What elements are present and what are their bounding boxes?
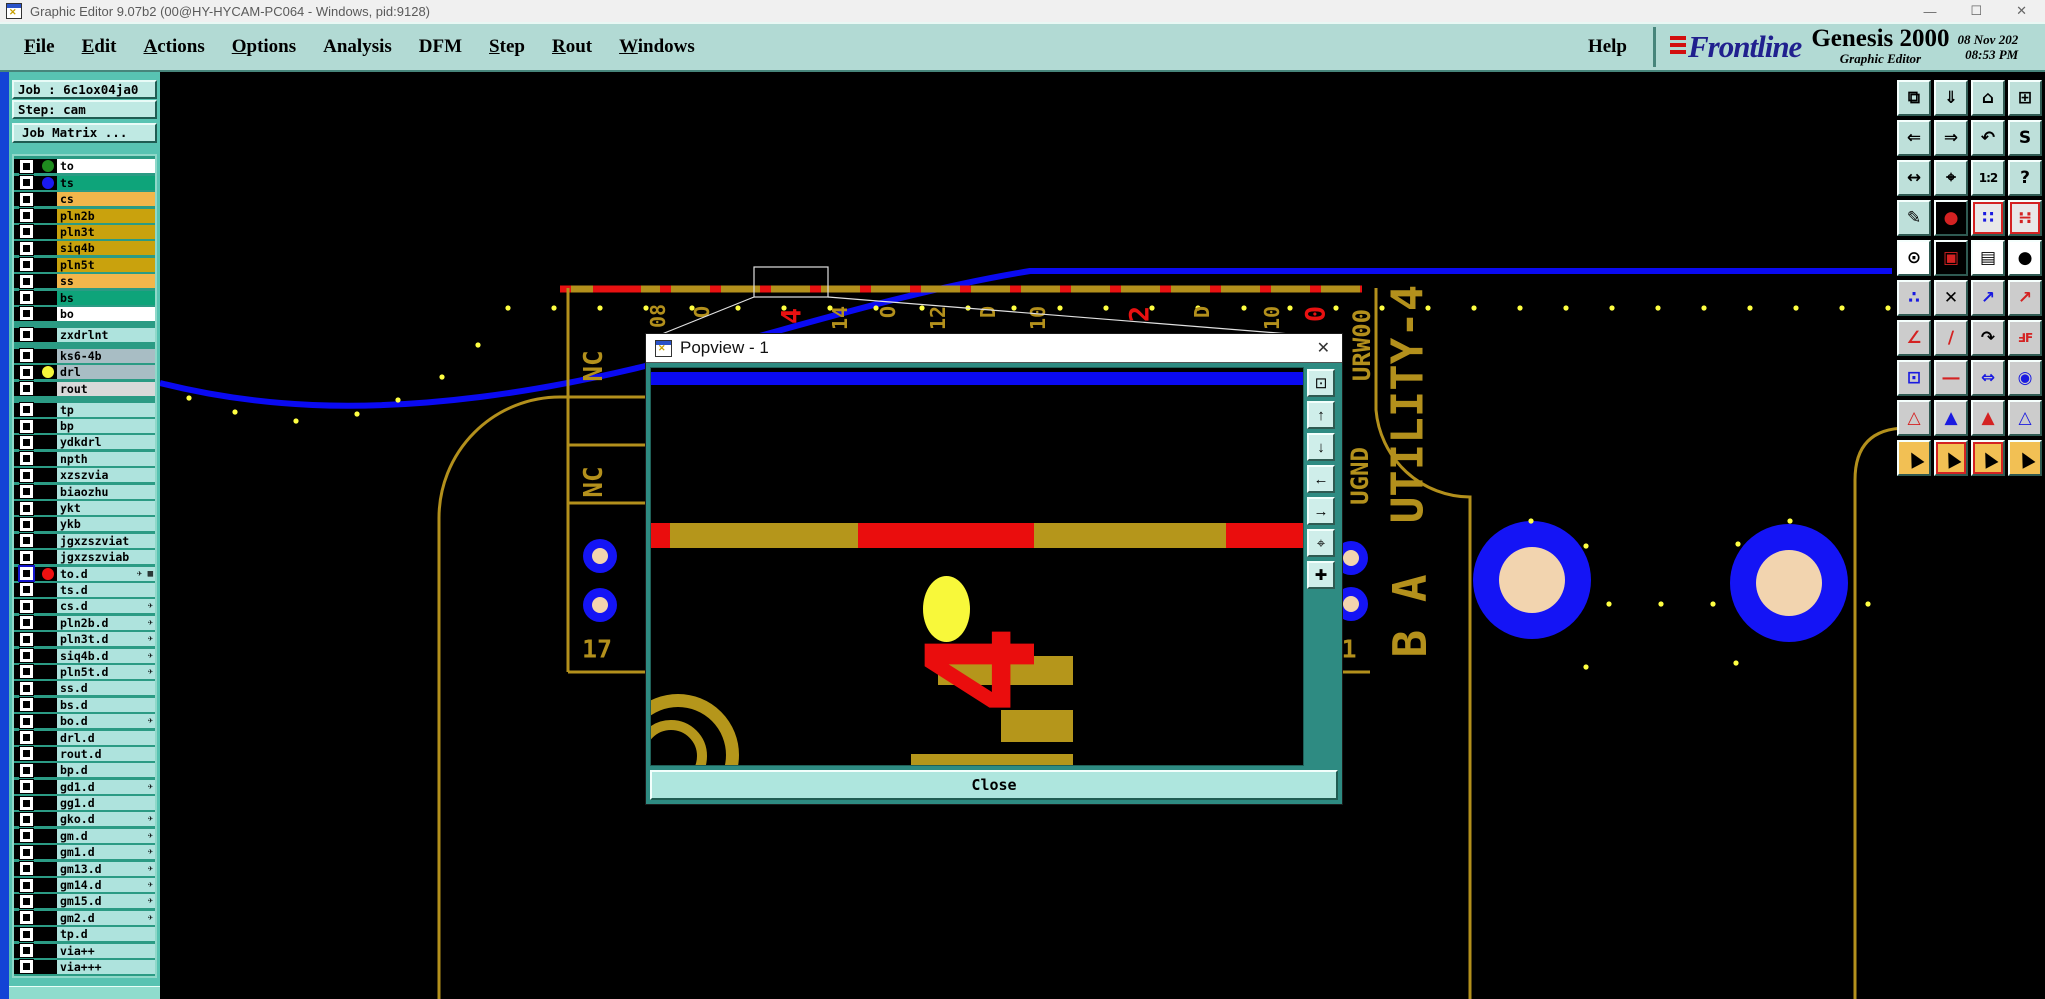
menu-edit[interactable]: Edit xyxy=(82,36,117,58)
layer-name[interactable]: siq4b xyxy=(57,241,155,255)
menu-bar: FileEditActionsOptionsAnalysisDFMStepRou… xyxy=(0,22,2045,72)
layer-checkbox-cell xyxy=(14,567,39,581)
layer-status-cell xyxy=(39,944,57,958)
help-button[interactable]: ? xyxy=(2008,160,2042,196)
layer-checkbox[interactable] xyxy=(20,518,33,531)
layer-status-cell xyxy=(39,812,57,826)
layer-row[interactable]: to.d✈ ▦ xyxy=(14,567,155,581)
layer-flags-icon: ✈ xyxy=(148,862,153,876)
layer-row[interactable]: tp.d xyxy=(14,927,155,941)
cursor-net-button[interactable]: ▲ xyxy=(2008,440,2042,476)
pan-right-button[interactable]: ⇒ xyxy=(1934,120,1968,156)
layer-name[interactable]: ks6-4b xyxy=(57,349,155,363)
popview-numeral-4: 4 xyxy=(903,590,1063,750)
layer-row[interactable]: bs xyxy=(14,291,155,305)
minimize-icon[interactable]: — xyxy=(1923,4,1936,19)
layer-row[interactable]: gm14.d✈ xyxy=(14,878,155,892)
layer-flags-icon: ✈ xyxy=(148,894,153,908)
layer-checkbox-cell xyxy=(14,599,39,613)
layer-checkbox[interactable] xyxy=(20,485,33,498)
time-text: 08:53 PM xyxy=(1958,47,2019,62)
layer-name[interactable]: siq4b.d✈ xyxy=(57,649,155,663)
popview-button-strip: ⊡↑↓←→⌖✚ xyxy=(1304,367,1338,766)
layer-flags-icon: ✈ xyxy=(148,812,153,826)
layer-row[interactable]: tp xyxy=(14,403,155,417)
popview-left-icon[interactable]: ← xyxy=(1307,465,1335,493)
layer-row[interactable]: npth xyxy=(14,452,155,466)
layer-checkbox[interactable] xyxy=(20,209,33,222)
layer-checkbox[interactable] xyxy=(20,382,33,395)
layer-status-cell xyxy=(39,698,57,712)
rotate-button[interactable]: ↷ xyxy=(1971,320,2005,356)
triangle-select-2-button[interactable]: ▲ xyxy=(1934,400,1968,436)
layer-name[interactable]: cs xyxy=(57,192,155,206)
popview-icon xyxy=(655,340,672,357)
menu-options[interactable]: Options xyxy=(232,36,296,58)
layer-color-dot xyxy=(42,568,54,580)
layer-checkbox[interactable] xyxy=(20,780,33,793)
layer-name[interactable]: gko.d✈ xyxy=(57,812,155,826)
layer-status-cell xyxy=(39,780,57,794)
layer-name[interactable]: ss xyxy=(57,274,155,288)
step-name: Step: cam xyxy=(12,100,157,119)
popview-gold-trace xyxy=(911,754,1073,766)
brand-panel: Frontline Genesis 2000 Graphic Editor 08… xyxy=(1653,27,2045,67)
triangle-select-3-button[interactable]: ▲ xyxy=(1971,400,2005,436)
layer-row[interactable]: biaozhu xyxy=(14,485,155,499)
popview-striped-trace xyxy=(651,523,1303,548)
layer-checkbox-cell xyxy=(14,944,39,958)
layer-checkbox-cell xyxy=(14,517,39,531)
xy-window-button[interactable]: ⊞ xyxy=(2008,80,2042,116)
layer-status-cell xyxy=(39,649,57,663)
layer-row[interactable]: siq4b xyxy=(14,241,155,255)
layer-row[interactable]: jgxzszviab xyxy=(14,550,155,564)
popview-down-icon[interactable]: ↓ xyxy=(1307,433,1335,461)
layer-name[interactable]: ts xyxy=(57,176,155,190)
window-title: Graphic Editor 9.07b2 (00@HY-HYCAM-PC064… xyxy=(30,4,430,19)
cursor-poly-button[interactable]: ▲ xyxy=(1971,440,2005,476)
layer-row[interactable]: siq4b.d✈ xyxy=(14,649,155,663)
popview-center-icon[interactable]: ⌖ xyxy=(1307,529,1335,557)
layer-row[interactable]: gko.d✈ xyxy=(14,812,155,826)
layer-name[interactable]: gm15.d✈ xyxy=(57,894,155,908)
layer-checkbox[interactable] xyxy=(20,731,33,744)
layer-row[interactable]: pln3t.d✈ xyxy=(14,632,155,646)
layer-name[interactable]: gd1.d✈ xyxy=(57,780,155,794)
menu-actions[interactable]: Actions xyxy=(143,36,204,58)
layer-checkbox[interactable] xyxy=(20,160,33,173)
layer-checkbox-cell xyxy=(14,649,39,663)
layer-status-cell xyxy=(39,894,57,908)
layer-checkbox[interactable] xyxy=(20,469,33,482)
layer-checkbox-cell xyxy=(14,911,39,925)
layer-status-cell xyxy=(39,209,57,223)
layer-row[interactable]: rout.d xyxy=(14,747,155,761)
layer-status-cell xyxy=(39,714,57,728)
layer-name[interactable]: drl.d xyxy=(57,731,155,745)
layer-row[interactable]: ts xyxy=(14,176,155,190)
move-vertex-button[interactable]: ↗ xyxy=(1971,280,2005,316)
layer-name[interactable]: gm1.d✈ xyxy=(57,845,155,859)
layer-checkbox-cell xyxy=(14,501,39,515)
canvas-label: D xyxy=(1190,306,1214,318)
layer-row[interactable]: pln3t xyxy=(14,225,155,239)
layer-row[interactable]: ts.d xyxy=(14,583,155,597)
layer-row[interactable]: ss xyxy=(14,274,155,288)
layer-status-cell xyxy=(39,681,57,695)
layer-status-cell xyxy=(39,567,57,581)
layer-flags-icon: ✈ xyxy=(148,616,153,630)
layer-checkbox[interactable] xyxy=(20,633,33,646)
layer-checkbox[interactable] xyxy=(20,420,33,433)
layer-checkbox[interactable] xyxy=(20,616,33,629)
layer-status-cell xyxy=(39,159,57,173)
layer-status-cell xyxy=(39,501,57,515)
layer-name[interactable]: bp.d xyxy=(57,763,155,777)
layer-name[interactable]: bs xyxy=(57,291,155,305)
layer-name[interactable]: pln3t xyxy=(57,225,155,239)
layer-checkbox-cell xyxy=(14,665,39,679)
layer-row[interactable]: cs xyxy=(14,192,155,206)
layer-name[interactable]: jgxzszviat xyxy=(57,534,155,548)
layer-row[interactable]: gg1.d xyxy=(14,796,155,810)
layer-row[interactable]: rout xyxy=(14,382,155,396)
layer-row[interactable]: drl.d xyxy=(14,731,155,745)
layer-checkbox[interactable] xyxy=(20,960,33,973)
layer-status-cell xyxy=(39,403,57,417)
layer-name[interactable]: to xyxy=(57,159,155,173)
layer-row[interactable]: bo.d✈ xyxy=(14,714,155,728)
layer-checkbox[interactable] xyxy=(20,242,33,255)
layer-checkbox[interactable] xyxy=(20,682,33,695)
layer-checkbox-cell xyxy=(14,632,39,646)
layer-name[interactable]: ydkdrl xyxy=(57,435,155,449)
layer-checkbox[interactable] xyxy=(20,797,33,810)
layer-name[interactable]: drl xyxy=(57,365,155,379)
offset-pad-button[interactable]: ⊡ xyxy=(1897,360,1931,396)
stretch-line-button[interactable]: ― xyxy=(1934,360,1968,396)
layer-checkbox[interactable] xyxy=(20,862,33,875)
layer-name[interactable]: ss.d xyxy=(57,681,155,695)
cursor-select-button[interactable]: ▲ xyxy=(1897,440,1931,476)
layer-name[interactable]: gg1.d xyxy=(57,796,155,810)
layer-checkbox-cell xyxy=(14,829,39,843)
layer-name[interactable]: pln5t.d✈ xyxy=(57,665,155,679)
layer-status-cell xyxy=(39,192,57,206)
menu-step[interactable]: Step xyxy=(489,36,525,58)
layer-checkbox[interactable] xyxy=(20,403,33,416)
layer-checkbox[interactable] xyxy=(20,829,33,842)
layer-checkbox[interactable] xyxy=(20,176,33,189)
layer-checkbox[interactable] xyxy=(20,649,33,662)
layer-row[interactable]: gm15.d✈ xyxy=(14,894,155,908)
layer-checkbox-cell xyxy=(14,382,39,396)
layer-checkbox[interactable] xyxy=(20,846,33,859)
layer-checkbox[interactable] xyxy=(20,813,33,826)
layer-name[interactable]: pln2b.d✈ xyxy=(57,616,155,630)
layer-name[interactable]: pln5t xyxy=(57,258,155,272)
layer-checkbox[interactable] xyxy=(20,928,33,941)
layer-checkbox[interactable] xyxy=(20,698,33,711)
layer-name[interactable]: tp.d xyxy=(57,927,155,941)
layer-checkbox[interactable] xyxy=(20,583,33,596)
layer-row[interactable]: gd1.d✈ xyxy=(14,780,155,794)
layer-status-cell xyxy=(39,274,57,288)
layer-checkbox[interactable] xyxy=(20,911,33,924)
layer-status-cell xyxy=(39,616,57,630)
layer-checkbox[interactable] xyxy=(20,715,33,728)
menu-rout[interactable]: Rout xyxy=(552,36,592,58)
zoom-home-button[interactable]: ⌂ xyxy=(1971,80,2005,116)
layer-status-cell xyxy=(39,468,57,482)
layer-flags-icon: ✈ xyxy=(148,829,153,843)
select-feature-button[interactable]: ⊙ xyxy=(1897,240,1931,276)
canvas-label: 0 xyxy=(1301,306,1332,322)
layer-row[interactable]: pln5t.d✈ xyxy=(14,665,155,679)
layer-checkbox-cell xyxy=(14,403,39,417)
layer-name[interactable]: cs.d✈ xyxy=(57,599,155,613)
layer-row[interactable]: ss.d xyxy=(14,681,155,695)
layer-checkbox[interactable] xyxy=(20,258,33,271)
ruler-button[interactable]: ▤ xyxy=(1971,240,2005,276)
canvas-label: D xyxy=(976,306,1000,318)
gap-measure-button[interactable]: ⇔ xyxy=(1971,360,2005,396)
popview-pan-icon[interactable]: ✚ xyxy=(1307,561,1335,589)
layer-checkbox[interactable] xyxy=(20,436,33,449)
popview-close-icon[interactable]: ✕ xyxy=(1317,338,1342,358)
layer-checkbox[interactable] xyxy=(20,567,33,580)
menu-windows[interactable]: Windows xyxy=(619,36,695,58)
menu-file[interactable]: File xyxy=(24,36,55,58)
layer-row[interactable]: via++ xyxy=(14,944,155,958)
canvas-label: 10 xyxy=(1260,306,1284,330)
layer-row[interactable]: zxdrlnt xyxy=(14,328,155,342)
layer-row[interactable]: jgxzszviat xyxy=(14,534,155,548)
layer-name[interactable]: to.d✈ ▦ xyxy=(57,567,155,581)
layer-name[interactable]: npth xyxy=(57,452,155,466)
layer-name[interactable]: xzszvia xyxy=(57,468,155,482)
product-name: Genesis 2000 xyxy=(1811,27,1949,51)
menu-analysis[interactable]: Analysis xyxy=(323,36,392,58)
canvas-label: 17 xyxy=(582,635,612,664)
job-matrix-button[interactable]: Job Matrix ... xyxy=(12,123,157,143)
popview-right-icon[interactable]: → xyxy=(1307,497,1335,525)
layer-row[interactable]: cs.d✈ xyxy=(14,599,155,613)
layer-checkbox[interactable] xyxy=(20,349,33,362)
layer-color-dot xyxy=(42,160,54,172)
layer-checkbox[interactable] xyxy=(20,366,33,379)
layer-name[interactable]: pln3t.d✈ xyxy=(57,632,155,646)
layer-row[interactable]: ks6-4b xyxy=(14,349,155,363)
layer-status-cell xyxy=(39,862,57,876)
os-titlebar: Graphic Editor 9.07b2 (00@HY-HYCAM-PC064… xyxy=(0,0,2045,23)
popview-titlebar[interactable]: Popview - 1 ✕ xyxy=(646,334,1342,363)
layer-checkbox[interactable] xyxy=(20,600,33,613)
layer-checkbox[interactable] xyxy=(20,879,33,892)
desktop-edge xyxy=(0,72,9,999)
layer-row[interactable]: pln2b xyxy=(14,209,155,223)
layer-checkbox-cell xyxy=(14,192,39,206)
layer-checkbox-cell xyxy=(14,485,39,499)
unselect-button[interactable]: ✕ xyxy=(1934,280,1968,316)
layer-row[interactable]: ykt xyxy=(14,501,155,515)
app-icon xyxy=(6,3,22,19)
layer-row[interactable]: bs.d xyxy=(14,698,155,712)
layer-name[interactable]: bp xyxy=(57,419,155,433)
canvas-label: O xyxy=(876,306,900,318)
layer-name[interactable]: ykb xyxy=(57,517,155,531)
layer-row[interactable]: pln5t xyxy=(14,258,155,272)
layer-name[interactable]: bs.d xyxy=(57,698,155,712)
screen-down-button[interactable]: ⇓ xyxy=(1934,80,1968,116)
layer-flags-icon: ✈ xyxy=(148,911,153,925)
popview-window[interactable]: Popview - 1 ✕ 4 ⊡↑↓←→⌖✚ Close xyxy=(645,333,1343,805)
menu-dfm[interactable]: DFM xyxy=(419,36,462,58)
layer-name[interactable]: via++ xyxy=(57,944,155,958)
popview-close-button[interactable]: Close xyxy=(650,770,1338,800)
layer-checkbox[interactable] xyxy=(20,452,33,465)
surface-button[interactable]: ◉ xyxy=(2008,360,2042,396)
layer-name[interactable]: jgxzszviab xyxy=(57,550,155,564)
layer-name[interactable]: ts.d xyxy=(57,583,155,597)
net-points-button[interactable]: ∴ xyxy=(1897,280,1931,316)
layer-checkbox[interactable] xyxy=(20,307,33,320)
tools-button[interactable]: ✎ xyxy=(1897,200,1931,236)
serpentine-button[interactable]: S xyxy=(2008,120,2042,156)
layer-checkbox[interactable] xyxy=(20,291,33,304)
canvas-label: NC xyxy=(579,350,609,381)
layer-checkbox[interactable] xyxy=(20,895,33,908)
layer-name[interactable]: ykt xyxy=(57,501,155,515)
triangle-select-4-button[interactable]: △ xyxy=(2008,400,2042,436)
layer-checkbox-cell xyxy=(14,258,39,272)
canvas-label: UGND xyxy=(1346,447,1374,505)
layer-row[interactable]: gm1.d✈ xyxy=(14,845,155,859)
layer-row[interactable]: ykb xyxy=(14,517,155,531)
layer-flags-icon: ✈ xyxy=(148,632,153,646)
layer-row[interactable]: drl xyxy=(14,365,155,379)
right-toolbar: ⧉⇓⌂⊞⇐⇒↶S↔⌖1:2?✎●∷∺⊙▣▤●∴✕↗↗∠∕↷ℲF⊡―⇔◉△▲▲△▲… xyxy=(1897,72,2045,999)
layer-row[interactable]: bp xyxy=(14,419,155,433)
slope-measure-button[interactable]: ∕ xyxy=(1934,320,1968,356)
copy-vertex-button[interactable]: ↗ xyxy=(2008,280,2042,316)
layer-row[interactable]: gm.d✈ xyxy=(14,829,155,843)
triangle-select-1-button[interactable]: △ xyxy=(1897,400,1931,436)
layer-checkbox[interactable] xyxy=(20,534,33,547)
layer-checkbox-cell xyxy=(14,291,39,305)
layer-status-cell xyxy=(39,747,57,761)
layer-name[interactable]: rout xyxy=(57,382,155,396)
layer-status-cell xyxy=(39,241,57,255)
layer-status-cell xyxy=(39,763,57,777)
close-icon[interactable]: ✕ xyxy=(2016,3,2027,19)
layer-name[interactable]: gm13.d✈ xyxy=(57,862,155,876)
layer-status-cell xyxy=(39,382,57,396)
layer-name[interactable]: biaozhu xyxy=(57,485,155,499)
layer-name[interactable]: bo.d✈ xyxy=(57,714,155,728)
popview-body: 4 ⊡↑↓←→⌖✚ Close xyxy=(646,363,1342,804)
layer-checkbox[interactable] xyxy=(20,328,33,341)
layer-checkbox[interactable] xyxy=(20,944,33,957)
layer-row[interactable]: gm2.d✈ xyxy=(14,911,155,925)
layer-checkbox-cell xyxy=(14,714,39,728)
layer-name[interactable]: rout.d xyxy=(57,747,155,761)
layer-checkbox[interactable] xyxy=(20,665,33,678)
layer-row[interactable]: ydkdrl xyxy=(14,435,155,449)
layer-status-cell xyxy=(39,176,57,190)
copy-screen-button[interactable]: ⧉ xyxy=(1897,80,1931,116)
cursor-frame-button[interactable]: ▲ xyxy=(1934,440,1968,476)
layer-checkbox[interactable] xyxy=(20,764,33,777)
netlist-a-button[interactable]: ∷ xyxy=(1971,200,2005,236)
active-layer-button[interactable]: ▣ xyxy=(1934,240,1968,276)
layer-row[interactable]: via+++ xyxy=(14,960,155,974)
layer-checkbox-cell xyxy=(14,534,39,548)
product-tagline: Graphic Editor xyxy=(1811,51,1949,67)
layer-checkbox[interactable] xyxy=(20,502,33,515)
layer-checkbox[interactable] xyxy=(20,225,33,238)
layer-name[interactable]: gm.d✈ xyxy=(57,829,155,843)
layer-status-cell xyxy=(39,349,57,363)
layer-row[interactable]: gm13.d✈ xyxy=(14,862,155,876)
layer-row[interactable]: to xyxy=(14,159,155,173)
layer-name[interactable]: via+++ xyxy=(57,960,155,974)
layer-row[interactable]: pln2b.d✈ xyxy=(14,616,155,630)
zoom-center-button[interactable]: ⌖ xyxy=(1934,160,1968,196)
layer-name[interactable]: gm14.d✈ xyxy=(57,878,155,892)
layer-checkbox[interactable] xyxy=(20,275,33,288)
layer-checkbox-cell xyxy=(14,583,39,597)
layer-color-dot xyxy=(42,366,54,378)
layer-name[interactable]: zxdrlnt xyxy=(57,328,155,342)
layer-row[interactable]: bp.d xyxy=(14,763,155,777)
maximize-icon[interactable]: ☐ xyxy=(1970,3,1982,19)
board-outline xyxy=(439,397,645,999)
canvas-label: B A xyxy=(1383,574,1437,657)
layer-name[interactable]: tp xyxy=(57,403,155,417)
popview-canvas[interactable]: 4 xyxy=(650,367,1304,766)
layer-name[interactable]: pln2b xyxy=(57,209,155,223)
layer-checkbox-cell xyxy=(14,307,39,321)
pan-left-button[interactable]: ⇐ xyxy=(1897,120,1931,156)
canvas-label: URW00 xyxy=(1348,309,1376,381)
layer-checkbox-cell xyxy=(14,468,39,482)
layer-row[interactable]: xzszvia xyxy=(14,468,155,482)
scale-1-2-button[interactable]: 1:2 xyxy=(1971,160,2005,196)
layer-checkbox[interactable] xyxy=(20,747,33,760)
zoom-previous-button[interactable]: ↶ xyxy=(1971,120,2005,156)
layer-status-cell xyxy=(39,534,57,548)
mirror-button[interactable]: ℲF xyxy=(2008,320,2042,356)
layer-name[interactable]: gm2.d✈ xyxy=(57,911,155,925)
menu-help[interactable]: Help xyxy=(1562,36,1653,58)
layer-checkbox[interactable] xyxy=(20,193,33,206)
pad-select-button[interactable]: ● xyxy=(2008,240,2042,276)
layer-row[interactable]: bo xyxy=(14,307,155,321)
angle-measure-button[interactable]: ∠ xyxy=(1897,320,1931,356)
layer-name[interactable]: bo xyxy=(57,307,155,321)
popview-window-icon[interactable]: ⊡ xyxy=(1307,369,1335,397)
layer-checkbox-cell xyxy=(14,763,39,777)
netlist-b-button[interactable]: ∺ xyxy=(2008,200,2042,236)
popview-up-icon[interactable]: ↑ xyxy=(1307,401,1335,429)
zoom-fit-button[interactable]: ↔ xyxy=(1897,160,1931,196)
layer-checkbox-cell xyxy=(14,241,39,255)
net-trace-button[interactable]: ● xyxy=(1934,200,1968,236)
layer-flags-icon: ✈ xyxy=(148,599,153,613)
layer-checkbox[interactable] xyxy=(20,551,33,564)
